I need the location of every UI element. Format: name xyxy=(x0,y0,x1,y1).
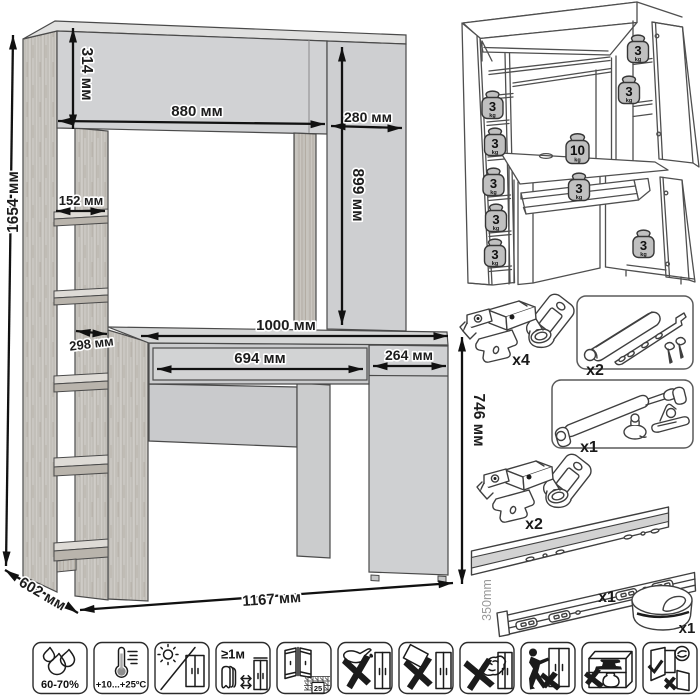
svg-text:+10...+25ºC: +10...+25ºC xyxy=(96,680,147,691)
svg-text:880 мм: 880 мм xyxy=(171,103,222,120)
svg-text:899 мм: 899 мм xyxy=(349,168,366,221)
svg-text:314 мм: 314 мм xyxy=(78,47,95,100)
svg-text:x1: x1 xyxy=(598,589,616,606)
svg-text:152 мм: 152 мм xyxy=(59,193,104,208)
svg-text:x1: x1 xyxy=(679,620,696,637)
svg-text:350mm: 350mm xyxy=(480,579,494,621)
svg-text:25: 25 xyxy=(314,684,322,693)
svg-text:x2: x2 xyxy=(586,362,604,379)
svg-text:280 мм: 280 мм xyxy=(344,109,392,125)
svg-text:x1: x1 xyxy=(580,439,598,456)
svg-text:≥1м: ≥1м xyxy=(221,647,245,662)
svg-text:1654 мм: 1654 мм xyxy=(5,171,22,233)
svg-text:60-70%: 60-70% xyxy=(41,679,79,691)
svg-text:1000 мм: 1000 мм xyxy=(256,317,316,334)
svg-text:694 мм: 694 мм xyxy=(234,350,285,367)
svg-text:x2: x2 xyxy=(525,516,543,533)
svg-text:264 мм: 264 мм xyxy=(385,347,433,363)
svg-text:746 мм: 746 мм xyxy=(470,393,487,446)
svg-text:x4: x4 xyxy=(512,352,530,369)
